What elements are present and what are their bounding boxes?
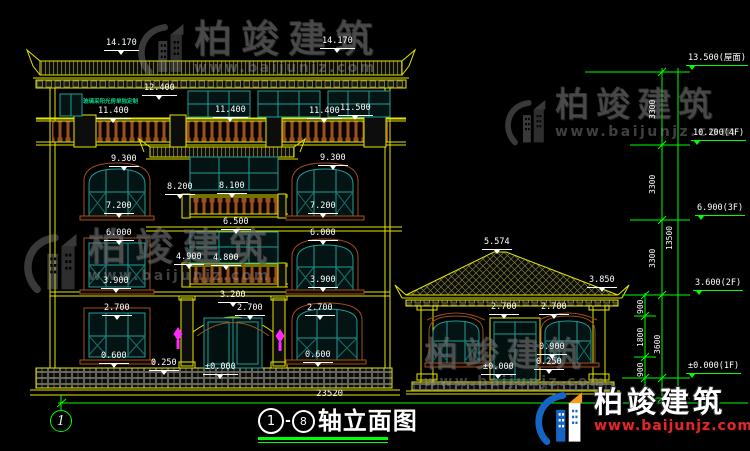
axis-circle-start: 1: [258, 408, 284, 434]
level-label: 12.400: [142, 84, 177, 100]
level-label: 2.700: [539, 303, 569, 319]
level-label: 2.700: [305, 304, 335, 320]
story-level-label: ±0.000(1F): [686, 362, 741, 378]
vertical-dim-label: 900: [637, 363, 645, 377]
level-label: 0.250: [534, 358, 564, 374]
axis-circle-end: 8: [292, 410, 315, 433]
level-label: 3.850: [587, 276, 617, 292]
level-label: 6.000: [104, 229, 134, 245]
brand-name: 柏竣建筑: [594, 388, 750, 417]
drawing-title: 1 - 8 轴立面图: [258, 408, 418, 443]
cad-canvas: 14.17014.17012.40011.40011.40011.40011.5…: [0, 0, 750, 451]
level-label: 11.500: [338, 104, 373, 120]
title-dash: -: [285, 414, 291, 428]
vertical-dim-label: 3600: [654, 335, 662, 354]
level-label: 2.700: [102, 304, 132, 320]
level-label: 2.700: [235, 304, 265, 320]
level-label: 4.900: [174, 253, 204, 269]
level-label: 3.900: [308, 276, 338, 292]
vertical-dim-label: 900: [637, 300, 645, 314]
vertical-dim-label: 13500: [666, 226, 674, 250]
story-level-label: 10.200(4F): [691, 129, 746, 145]
vertical-dim-label: 3300: [649, 175, 657, 194]
elevation-linework: [0, 0, 750, 451]
vertical-dim-label: 1800: [637, 328, 645, 347]
axis-bubble-1: 1: [50, 410, 72, 432]
brand-logo-icon: [534, 388, 590, 450]
level-label: 4.800: [211, 254, 241, 270]
level-label: 2.700: [489, 303, 519, 319]
level-label: 9.300: [318, 154, 348, 170]
vertical-dim-label: 3300: [649, 100, 657, 119]
brand-badge: 柏竣建筑 www.baijunjz.com: [534, 388, 750, 450]
level-label: 7.200: [308, 202, 338, 218]
level-label: 0.250: [149, 359, 179, 375]
brand-url: www.baijunjz.com: [594, 419, 750, 433]
level-label: 7.200: [104, 202, 134, 218]
level-label: 11.400: [307, 107, 342, 123]
level-label: 6.500: [221, 218, 251, 234]
level-label: 3.900: [101, 277, 131, 293]
level-label: 0.600: [303, 351, 333, 367]
level-label: 0.600: [99, 352, 129, 368]
title-text: 轴立面图: [318, 409, 418, 433]
story-level-label: 3.600(2F): [693, 279, 743, 295]
overall-width-dim: 23520: [316, 390, 343, 399]
story-level-label: 13.500(屋面): [686, 54, 748, 70]
story-level-label: 6.900(3F): [695, 204, 745, 220]
level-label: ±0.000: [481, 363, 516, 379]
level-label: 9.300: [109, 155, 139, 171]
level-label: 14.170: [320, 37, 355, 53]
level-label: 5.574: [482, 238, 512, 254]
level-label: ±0.000: [203, 363, 238, 379]
level-label: 11.400: [213, 106, 248, 122]
level-label: 8.100: [217, 182, 247, 198]
vertical-dim-label: 3300: [649, 249, 657, 268]
level-label: 8.200: [165, 183, 195, 199]
title-underline-thick: [258, 437, 388, 440]
title-underline-thin: [258, 442, 388, 443]
level-label: 11.400: [96, 107, 131, 123]
level-label: 6.000: [308, 229, 338, 245]
level-label: 14.170: [104, 39, 139, 55]
sunroom-note: 玻璃采阳光房单独定制: [83, 100, 138, 106]
